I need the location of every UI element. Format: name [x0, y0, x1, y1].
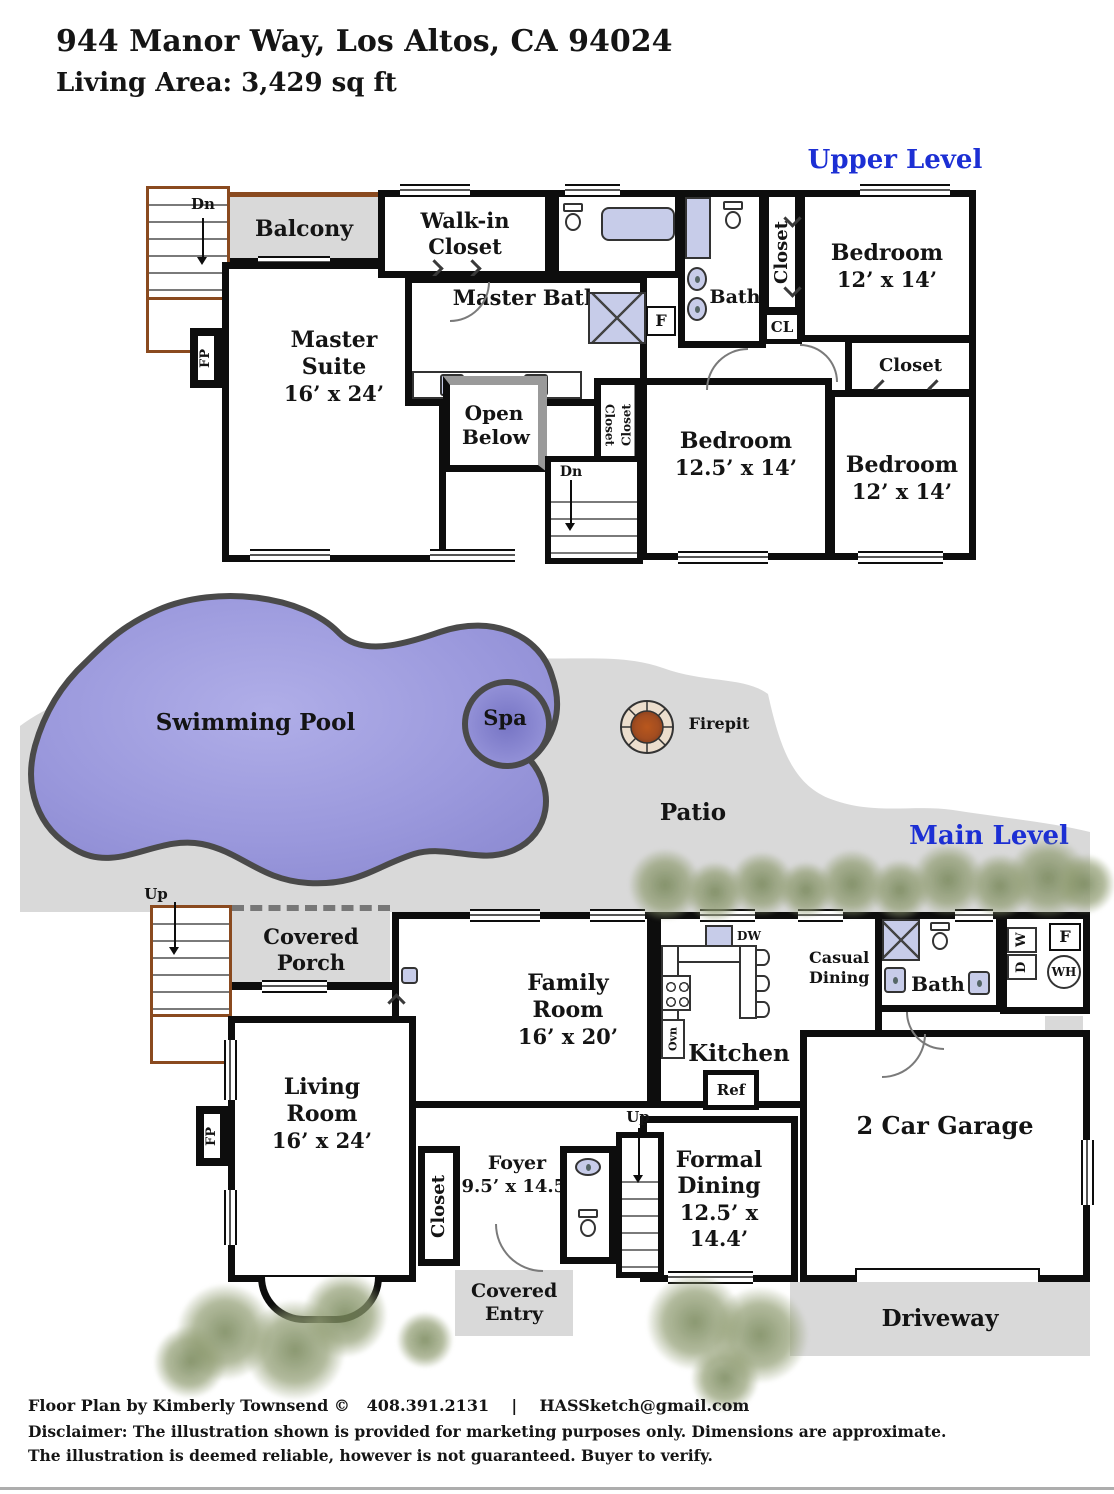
bedroom-bottom-right-label: Bedroom 12’ x 14’	[835, 397, 969, 553]
upper-fireplace: FP	[196, 334, 216, 382]
bedroom-name: Bedroom	[680, 428, 792, 455]
firepit-icon	[618, 698, 676, 756]
living-room-name: Living Room	[277, 1074, 367, 1128]
spa-label: Spa	[474, 702, 536, 734]
utility-room: W D F WH	[1000, 912, 1090, 1014]
window	[470, 909, 540, 922]
bedroom-dims: 12.5’ x 14’	[675, 455, 797, 481]
main-up-exterior-arrow	[174, 902, 176, 952]
main-bath-label: Bath	[906, 969, 970, 999]
main-up-interior-label: Up	[618, 1106, 658, 1128]
window	[565, 184, 620, 197]
shower-icon	[588, 292, 646, 344]
living-room: Living Room 16’ x 24’	[228, 1016, 416, 1282]
window	[224, 1190, 237, 1245]
bedroom-middle: Bedroom 12.5’ x 14’	[640, 378, 832, 560]
door-arc	[495, 1224, 543, 1272]
shrub-icon	[1055, 854, 1114, 914]
living-room-dims: 16’ x 24’	[272, 1128, 372, 1154]
shower-stall-icon	[685, 197, 711, 259]
balcony: Balcony	[230, 192, 378, 262]
stool-icon	[757, 975, 770, 992]
open-below-text: Open Below	[462, 401, 526, 450]
bedroom-dims: 12’ x 14’	[837, 267, 937, 293]
sink-icon	[575, 1158, 601, 1176]
master-suite-name: Master Suite	[274, 327, 394, 381]
bedroom-bottom-right: Bedroom 12’ x 14’	[828, 390, 976, 560]
covered-porch-label: Covered Porch	[232, 911, 390, 989]
address-title: 944 Manor Way, Los Altos, CA 94024	[56, 24, 672, 59]
toilet-icon	[578, 1209, 600, 1239]
firepit-label: Firepit	[684, 712, 754, 736]
main-stairs-landing	[150, 1014, 232, 1064]
closet-pair-a-label: Closet	[601, 385, 618, 465]
walk-in-closet-text: Walk-in Closet	[410, 208, 520, 259]
washer-label: W	[1009, 929, 1035, 951]
footer-disclaimer-1: Disclaimer: The illustration shown is pr…	[28, 1422, 946, 1441]
kitchen-label: Kitchen	[669, 1037, 809, 1071]
main-interior-stairs	[616, 1132, 664, 1278]
main-closet: Closet	[418, 1146, 460, 1266]
bedroom-top-right: Bedroom 12’ x 14’	[798, 190, 976, 342]
bathtub-icon	[601, 207, 675, 241]
master-suite-dims: 16’ x 24’	[284, 381, 384, 407]
window	[250, 549, 330, 562]
main-furnace-label: F	[1051, 925, 1079, 949]
main-furnace: F	[1049, 923, 1081, 951]
formal-dining-name: Formal Dining	[669, 1147, 769, 1201]
toilet-icon	[563, 203, 585, 233]
sink-icon	[884, 967, 906, 993]
living-room-label: Living Room 16’ x 24’	[235, 1023, 409, 1275]
upper-fireplace-label: FP	[198, 336, 214, 380]
closet-top-right-label: Closet	[852, 343, 969, 389]
wall-control-icon	[401, 967, 418, 984]
covered-entry-text: Covered Entry	[471, 1280, 557, 1326]
covered-entry-label: Covered Entry	[455, 1270, 573, 1336]
shrub-icon	[397, 1312, 453, 1368]
kitchen-counter	[739, 945, 757, 1019]
window	[678, 551, 768, 564]
family-room: Family Room 16’ x 20’	[392, 912, 654, 1108]
shower-icon	[882, 919, 920, 961]
main-closet-label: Closet	[425, 1153, 453, 1259]
driveway: Driveway	[790, 1282, 1090, 1356]
dishwasher-label: DW	[733, 927, 765, 945]
window	[590, 909, 645, 922]
bedroom-middle-label: Bedroom 12.5’ x 14’	[647, 385, 825, 553]
window	[262, 980, 327, 993]
family-room-name: Family Room	[523, 970, 613, 1024]
window	[1081, 1140, 1094, 1205]
walk-in-closet-label: Walk-in Closet	[385, 197, 545, 271]
main-up-exterior-label: Up	[138, 884, 174, 904]
upper-cl-closet: CL	[762, 310, 802, 344]
upper-furnace-label: F	[648, 308, 674, 334]
window	[400, 184, 470, 197]
sink-icon	[687, 267, 707, 291]
upper-hall-closet: Closet	[762, 190, 802, 314]
powder-room	[560, 1146, 616, 1264]
footer-disclaimer-2: The illustration is deemed reliable, how…	[28, 1446, 713, 1465]
water-heater-label: WH	[1049, 957, 1079, 987]
closet-pair-b-label: Closet	[618, 385, 638, 465]
closet-top-right: Closet	[845, 336, 976, 396]
water-heater: WH	[1047, 955, 1081, 989]
door-arc	[706, 348, 748, 390]
upper-dn-label: Dn	[186, 194, 220, 214]
dryer-label: D	[1009, 956, 1035, 978]
shrub-icon	[154, 1326, 226, 1398]
driveway-label: Driveway	[790, 1282, 1090, 1356]
dryer: D	[1007, 954, 1037, 980]
floor-plan-canvas: 944 Manor Way, Los Altos, CA 94024 Livin…	[0, 0, 1114, 1494]
stair-treads	[551, 486, 637, 558]
cooktop-icon	[661, 975, 691, 1011]
upper-hall-bath: Bath	[678, 190, 766, 348]
toilet-icon	[723, 201, 745, 231]
window	[858, 551, 943, 564]
garage-label: 2 Car Garage	[807, 1037, 1083, 1275]
main-fireplace: FP	[202, 1112, 222, 1160]
stool-icon	[757, 1001, 770, 1018]
washer: W	[1007, 927, 1037, 953]
walk-in-closet: Walk-in Closet	[378, 190, 552, 278]
door-arc	[800, 344, 838, 382]
sink-icon	[687, 297, 707, 321]
foyer-dims: 9.5’ x 14.5’	[462, 1176, 573, 1198]
bedroom-name: Bedroom	[846, 452, 958, 479]
upper-interior-stairs: Dn	[545, 456, 643, 564]
bottom-divider	[0, 1487, 1114, 1490]
covered-entry: Covered Entry	[455, 1270, 573, 1336]
refrigerator: Ref	[703, 1070, 759, 1110]
balcony-label: Balcony	[230, 197, 378, 262]
covered-porch-text: Covered Porch	[261, 924, 361, 975]
window	[224, 1040, 237, 1100]
main-fireplace-label: FP	[204, 1114, 220, 1158]
footer-credit: Floor Plan by Kimberly Townsend © 408.39…	[28, 1396, 749, 1415]
toilet-icon	[930, 922, 952, 952]
upper-dn-arrow	[202, 218, 204, 262]
stool-icon	[757, 949, 770, 966]
upper-furnace: F	[646, 306, 676, 336]
family-room-label: Family Room 16’ x 20’	[399, 919, 647, 1101]
master-bath-tub-room	[552, 190, 682, 278]
casual-dining-label: Casual Dining	[801, 943, 877, 993]
main-bath: Bath	[875, 912, 1003, 1012]
garage: 2 Car Garage	[800, 1030, 1090, 1282]
open-below: Open Below	[443, 376, 547, 472]
window	[430, 549, 515, 562]
bedroom-top-right-label: Bedroom 12’ x 14’	[805, 197, 969, 335]
living-area-subtitle: Living Area: 3,429 sq ft	[56, 68, 397, 98]
shrub-icon	[303, 1273, 387, 1357]
main-up-interior-arrow	[638, 1128, 640, 1180]
family-room-dims: 16’ x 20’	[518, 1024, 618, 1050]
pool-shape	[8, 588, 568, 908]
formal-dining-label: Formal Dining 12.5’ x 14.4’	[647, 1123, 791, 1275]
casual-dining-text: Casual Dining	[809, 948, 869, 987]
window	[860, 184, 950, 197]
patio-label: Patio	[638, 796, 748, 830]
upper-cl-label: CL	[767, 315, 797, 339]
open-below-label: Open Below	[450, 385, 538, 465]
main-exterior-stairs	[150, 905, 232, 1017]
interior-dn-arrow	[570, 480, 572, 528]
bedroom-name: Bedroom	[831, 240, 943, 267]
formal-dining-dims: 12.5’ x 14.4’	[647, 1200, 791, 1251]
bedroom-dims: 12’ x 14’	[852, 479, 952, 505]
upper-level-label: Upper Level	[805, 144, 985, 178]
upper-hall-bath-label: Bath	[707, 283, 763, 313]
refrigerator-label: Ref	[708, 1075, 754, 1105]
dishwasher-icon	[705, 925, 733, 947]
sink-icon	[968, 971, 990, 995]
foyer-name: Foyer	[488, 1152, 546, 1175]
covered-porch: Covered Porch	[232, 905, 390, 989]
pool-label: Swimming Pool	[148, 706, 363, 740]
